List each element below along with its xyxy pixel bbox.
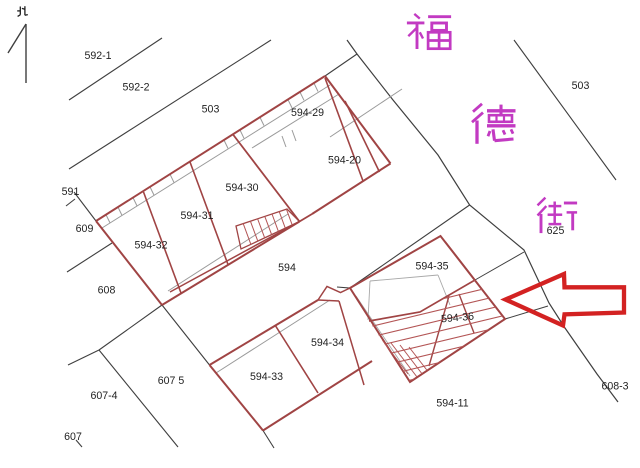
svg-text:594-32: 594-32 (135, 240, 168, 252)
svg-text:594-11: 594-11 (436, 398, 468, 410)
svg-text:594-34: 594-34 (311, 337, 344, 349)
svg-text:607 5: 607 5 (158, 375, 185, 387)
svg-text:607: 607 (64, 431, 82, 443)
svg-text:591: 591 (62, 186, 80, 198)
svg-text:625: 625 (547, 225, 565, 237)
svg-text:594-29: 594-29 (291, 107, 324, 119)
svg-text:503: 503 (202, 104, 220, 116)
svg-text:608: 608 (98, 285, 116, 297)
svg-text:594-35: 594-35 (416, 261, 449, 273)
svg-text:594: 594 (278, 262, 296, 274)
svg-text:594-33: 594-33 (250, 371, 283, 383)
svg-text:592-2: 592-2 (122, 82, 149, 94)
svg-text:594-30: 594-30 (226, 182, 259, 194)
svg-text:607-4: 607-4 (90, 390, 117, 402)
svg-text:608-3: 608-3 (601, 381, 628, 393)
svg-text:503: 503 (572, 80, 590, 92)
svg-text:609: 609 (76, 223, 94, 235)
svg-text:594-20: 594-20 (328, 155, 361, 167)
svg-text:594-31: 594-31 (181, 210, 214, 222)
svg-text:592-1: 592-1 (84, 50, 111, 62)
